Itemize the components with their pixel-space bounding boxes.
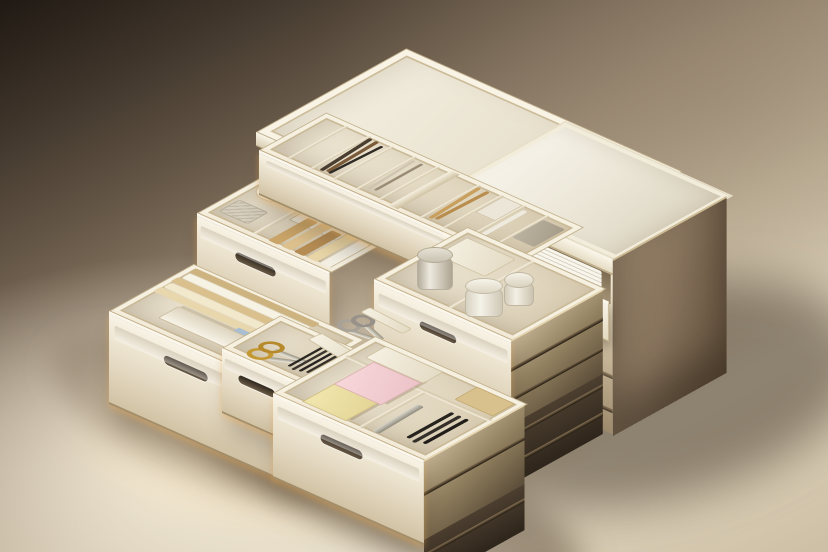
metal-pen [372,404,424,434]
white-jar-large-lid [465,278,503,294]
light-pen [367,160,416,190]
scissors-drawer-handle [238,374,275,398]
white-jar-small [504,279,534,306]
white-jar-large [465,285,503,317]
sticky-drawer-handle [321,433,363,461]
eraser-block [218,199,268,224]
black-pen [406,412,455,439]
white-jar-small-lid [504,272,534,288]
supply-drawer-handle [235,251,275,278]
wooden-pencil [428,187,481,219]
organizer-render-scene [0,0,828,552]
jar-drawer-handle [420,320,457,344]
glass-jar [417,254,453,290]
envelope-drawer-handle [164,354,208,383]
glass-jar-lid [417,247,453,263]
